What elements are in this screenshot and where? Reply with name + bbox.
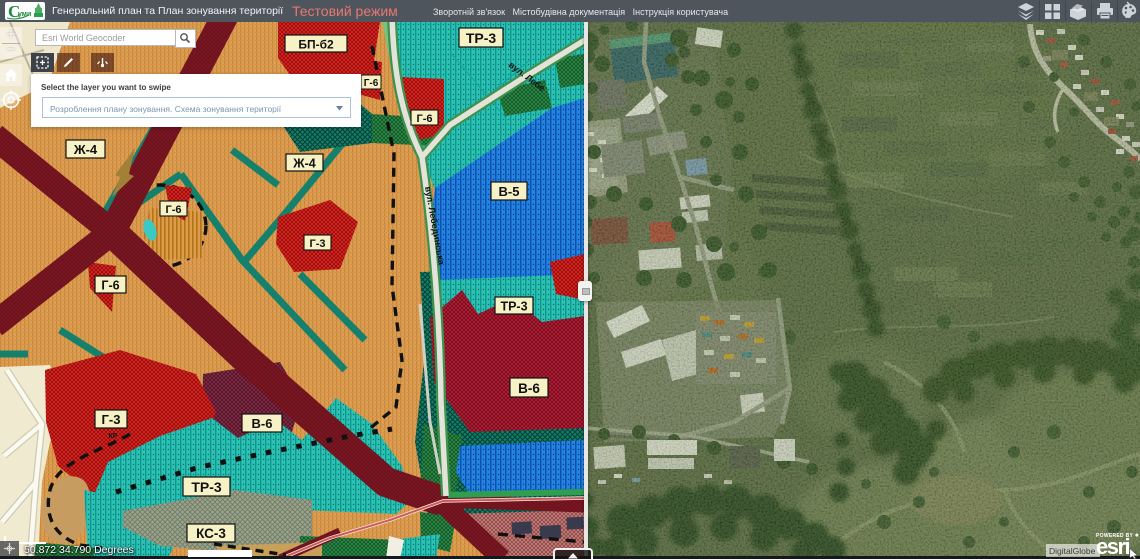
svg-text:В-6: В-6 xyxy=(252,416,273,431)
svg-text:ТР-3: ТР-3 xyxy=(500,300,527,314)
svg-text:КР: КР xyxy=(109,433,118,440)
svg-text:Г-6: Г-6 xyxy=(165,204,181,216)
svg-text:БП-б2: БП-б2 xyxy=(298,38,334,52)
svg-text:Ж-4: Ж-4 xyxy=(73,142,98,157)
svg-text:ТР-3: ТР-3 xyxy=(466,30,497,46)
svg-text:КС-3: КС-3 xyxy=(196,526,226,541)
svg-text:Г-3: Г-3 xyxy=(102,412,121,427)
svg-text:В-6: В-6 xyxy=(518,381,540,396)
svg-text:В-5: В-5 xyxy=(499,184,520,199)
svg-text:Г-6: Г-6 xyxy=(416,113,432,125)
svg-text:Ж-4: Ж-4 xyxy=(292,157,315,171)
svg-text:ТР-3: ТР-3 xyxy=(191,479,222,495)
svg-text:Г-3: Г-3 xyxy=(309,238,325,250)
svg-text:Г-6: Г-6 xyxy=(364,78,379,89)
svg-text:Г-6: Г-6 xyxy=(101,279,119,293)
